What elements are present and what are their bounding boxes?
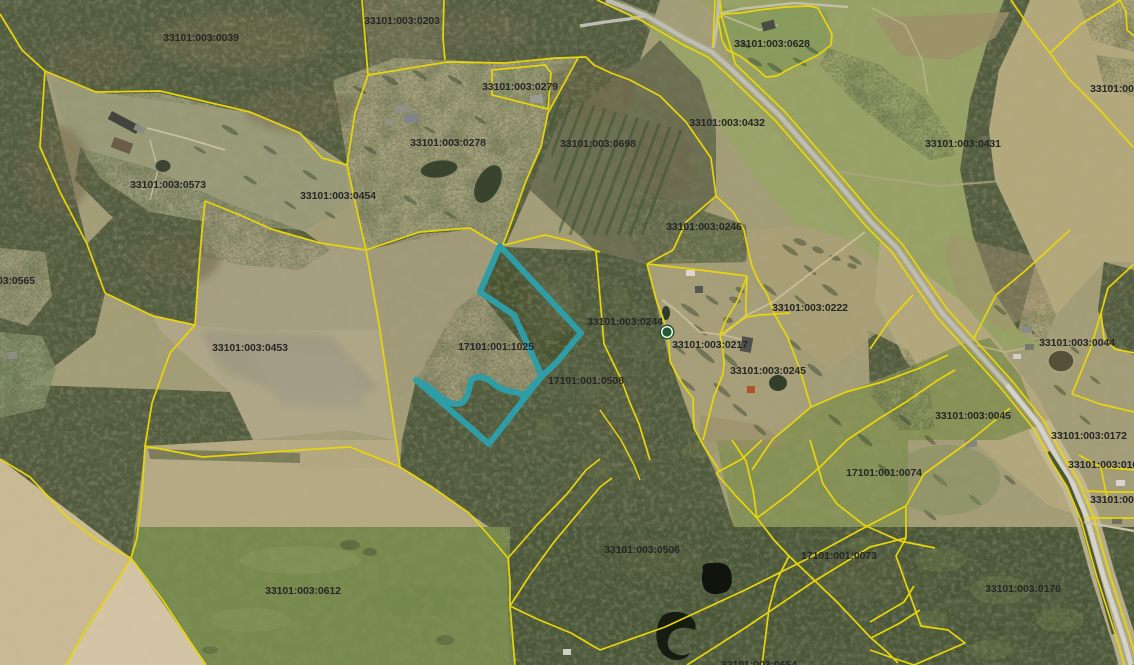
svg-text:33101:003:0246: 33101:003:0246 [666, 221, 742, 233]
svg-text:33101:003:0698: 33101:003:0698 [560, 138, 636, 150]
svg-text:33101:003:0163: 33101:003:0163 [1068, 459, 1134, 471]
svg-text:33101:003:0654: 33101:003:0654 [721, 659, 797, 665]
svg-text:33101:003:0217: 33101:003:0217 [672, 339, 748, 351]
svg-text:33101:003:0453: 33101:003:0453 [212, 342, 288, 354]
svg-text:33101:003:0045: 33101:003:0045 [935, 410, 1011, 422]
svg-text:33101:003:0176: 33101:003:0176 [985, 583, 1061, 595]
svg-text:33101:003:0454: 33101:003:0454 [300, 190, 376, 202]
svg-text:33101:003:0628: 33101:003:0628 [734, 38, 810, 50]
svg-text:33101:003:0565: 33101:003:0565 [0, 275, 35, 287]
svg-text:17101:001:0508: 17101:001:0508 [548, 375, 624, 387]
svg-text:33101:003:0245: 33101:003:0245 [730, 365, 806, 377]
svg-text:17101:001:0074: 17101:001:0074 [846, 467, 922, 479]
svg-text:33101:003:0044: 33101:003:0044 [1039, 337, 1115, 349]
svg-text:33101:003:0203: 33101:003:0203 [364, 15, 440, 27]
svg-text:33101:003:0612: 33101:003:0612 [265, 585, 341, 597]
svg-text:33101:003:0279: 33101:003:0279 [482, 81, 558, 93]
svg-text:33101:003:0039: 33101:003:0039 [163, 32, 239, 44]
svg-text:33101:003:0042: 33101:003:0042 [1090, 83, 1134, 95]
svg-text:33101:003:0432: 33101:003:0432 [689, 117, 765, 129]
svg-text:33101:003:0244: 33101:003:0244 [587, 316, 663, 328]
svg-text:33101:003:0573: 33101:003:0573 [130, 179, 206, 191]
svg-text:33101:003:0278: 33101:003:0278 [410, 137, 486, 149]
svg-text:33101:003:0431: 33101:003:0431 [925, 138, 1001, 150]
svg-text:33101:003:0506: 33101:003:0506 [604, 544, 680, 556]
svg-text:33101:003:0041: 33101:003:0041 [1090, 494, 1134, 506]
svg-text:17101:001:0073: 17101:001:0073 [801, 550, 877, 562]
svg-text:33101:003:0222: 33101:003:0222 [772, 302, 848, 314]
svg-text:33101:003:0172: 33101:003:0172 [1051, 430, 1127, 442]
svg-text:17101:001:1025: 17101:001:1025 [458, 341, 534, 353]
